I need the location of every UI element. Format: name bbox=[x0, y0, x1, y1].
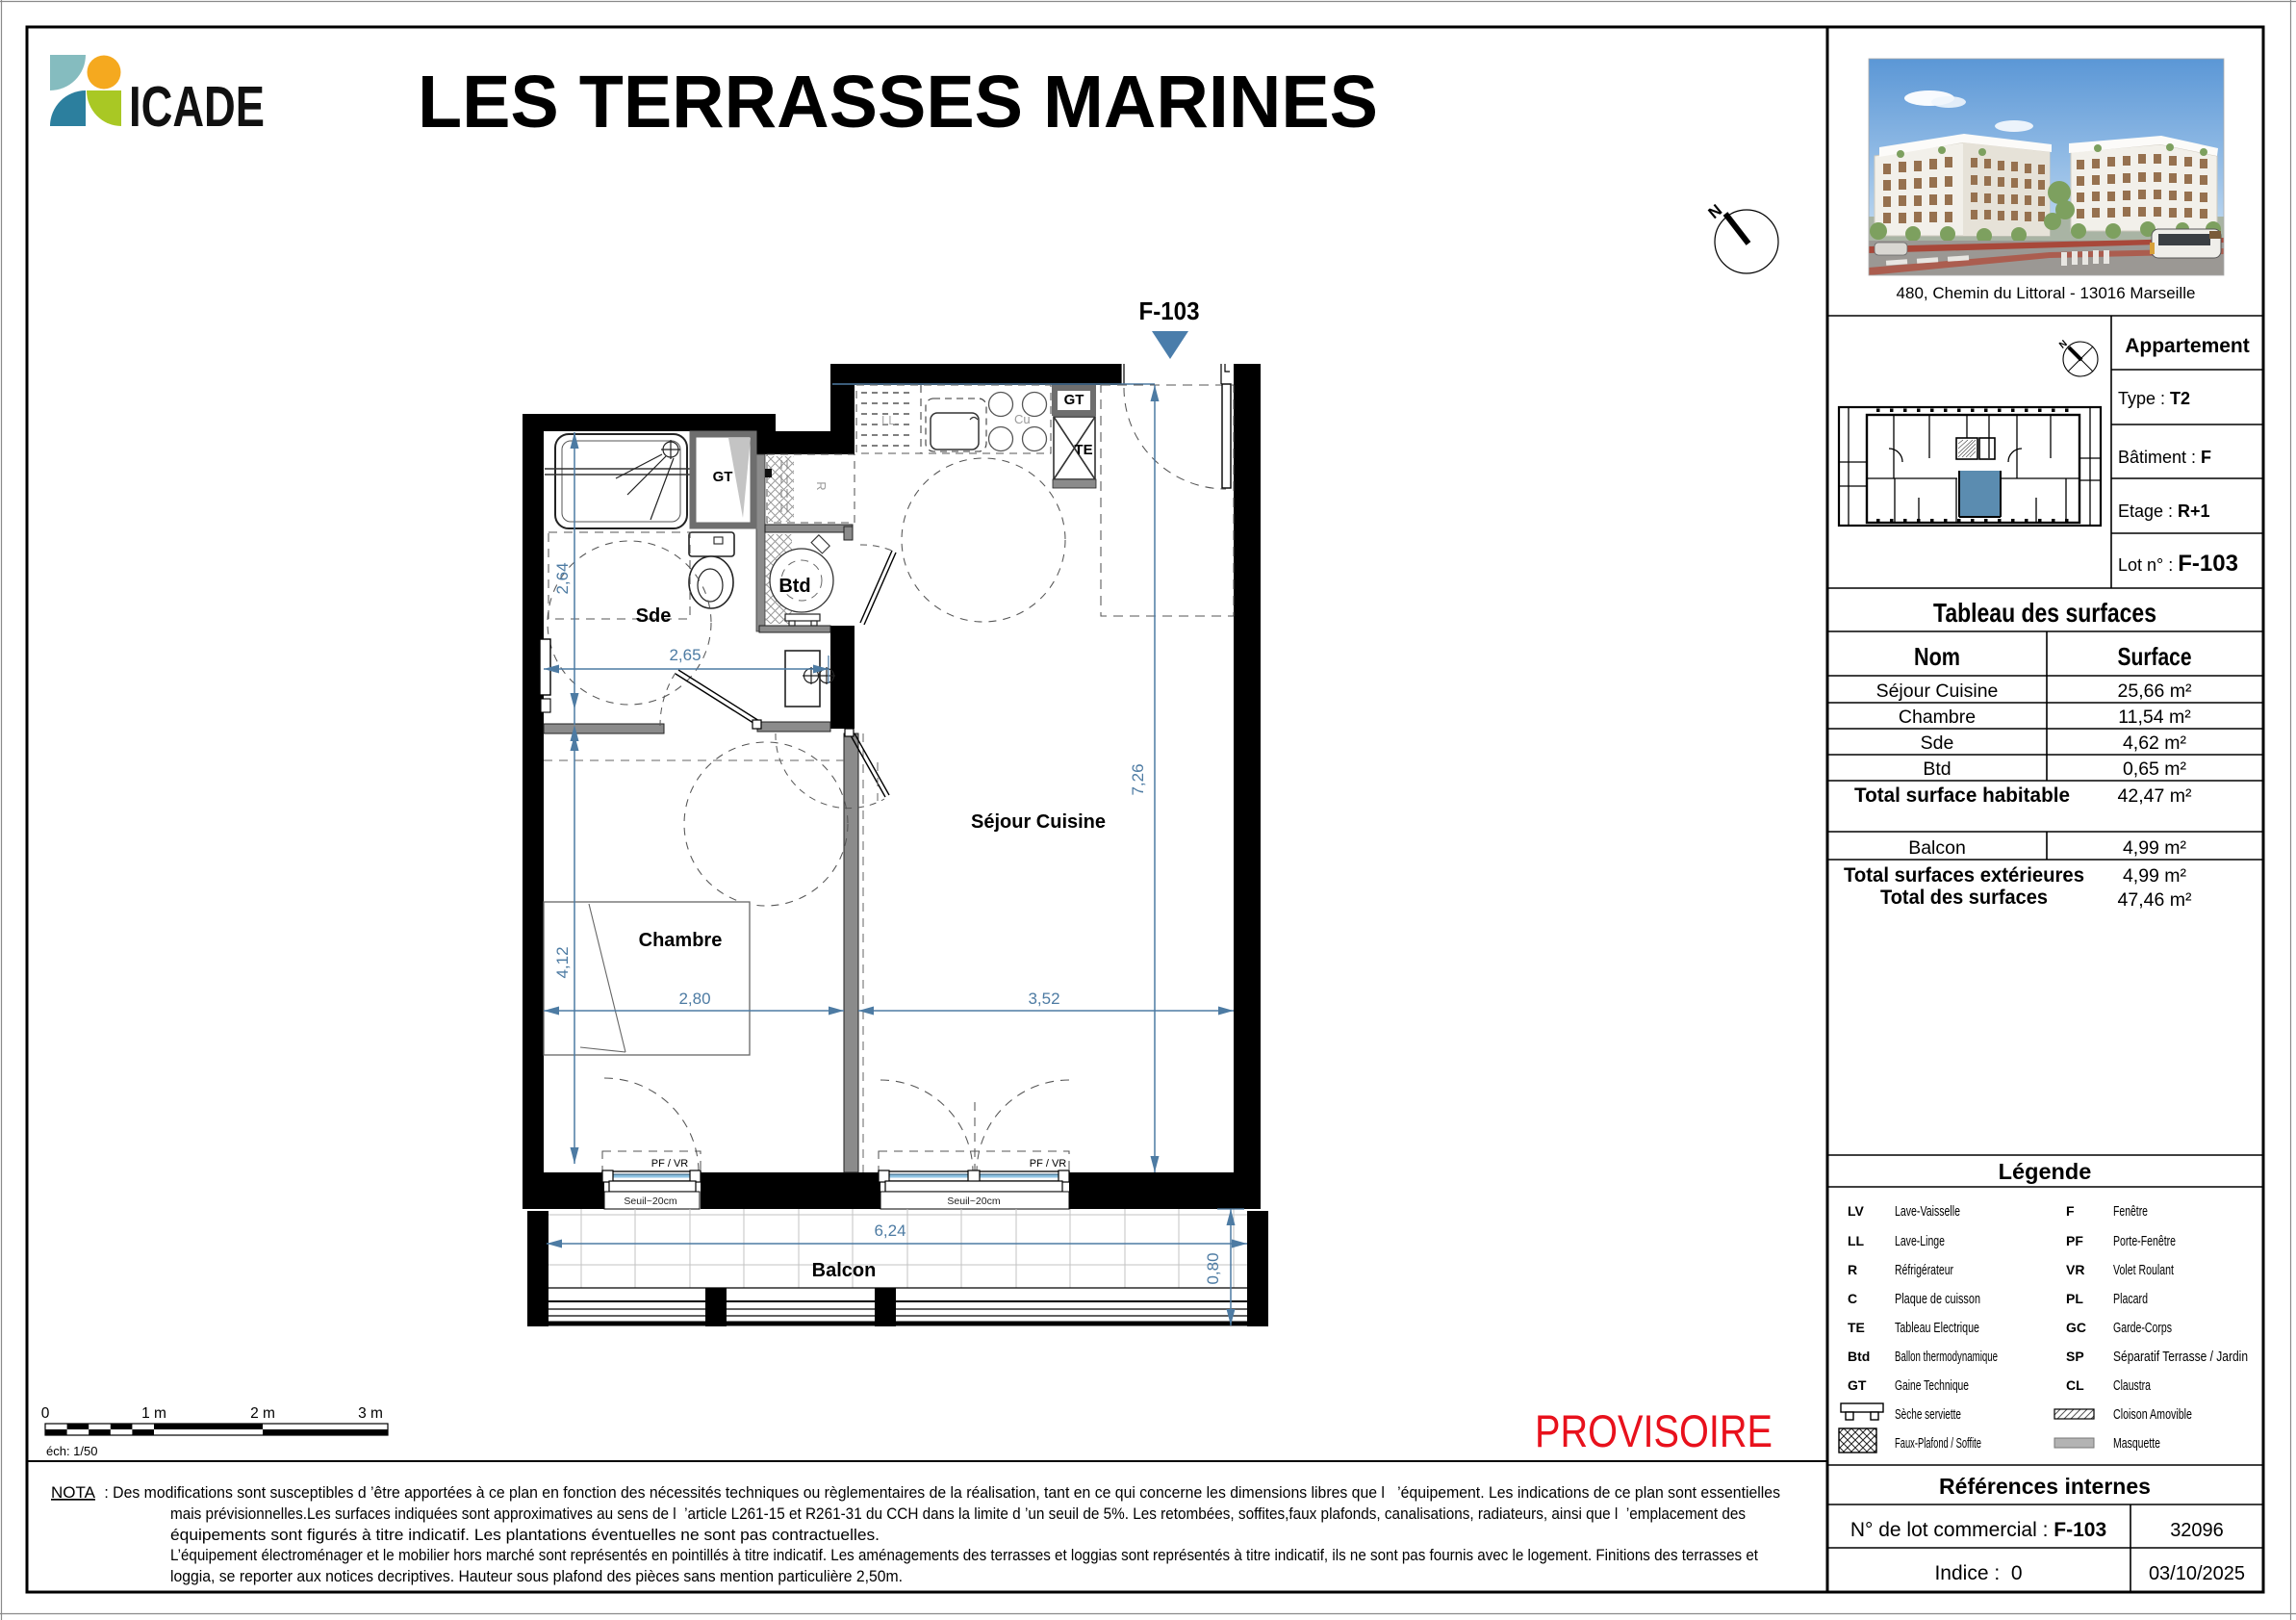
svg-text:25,66 m²: 25,66 m² bbox=[2118, 681, 2192, 702]
svg-text:Tableau des surfaces: Tableau des surfaces bbox=[1933, 598, 2156, 628]
svg-text:TE: TE bbox=[1074, 442, 1092, 458]
svg-text:Sde: Sde bbox=[1921, 733, 1954, 754]
svg-text:Lave-Vaisselle: Lave-Vaisselle bbox=[1895, 1203, 1960, 1220]
svg-text:PF: PF bbox=[2066, 1233, 2083, 1248]
svg-text:Porte-Fenêtre: Porte-Fenêtre bbox=[2113, 1233, 2176, 1249]
svg-text:F: F bbox=[2066, 1203, 2075, 1219]
svg-text:Masquette: Masquette bbox=[2113, 1435, 2160, 1452]
svg-text:CL: CL bbox=[2066, 1377, 2084, 1393]
svg-text:Chambre: Chambre bbox=[639, 930, 723, 951]
svg-text:Volet Roulant: Volet Roulant bbox=[2113, 1262, 2175, 1278]
svg-text:Gaine Technique: Gaine Technique bbox=[1895, 1377, 1969, 1394]
svg-text:Plaque de cuisson: Plaque de cuisson bbox=[1895, 1291, 1980, 1307]
svg-text:Séjour Cuisine: Séjour Cuisine bbox=[971, 811, 1106, 833]
svg-text:Seuil~20cm: Seuil~20cm bbox=[624, 1196, 676, 1207]
svg-text:4,62 m²: 4,62 m² bbox=[2123, 733, 2187, 754]
svg-text:Etage : R+1: Etage : R+1 bbox=[2118, 501, 2210, 521]
svg-text:loggia, se reporter aux notice: loggia, se reporter aux notices decripti… bbox=[170, 1567, 903, 1585]
svg-text:480, Chemin du Littoral - 1301: 480, Chemin du Littoral - 13016 Marseill… bbox=[1897, 284, 2196, 302]
svg-text:4,99 m²: 4,99 m² bbox=[2123, 837, 2187, 859]
svg-text:Placard: Placard bbox=[2113, 1291, 2148, 1307]
svg-text:1 m: 1 m bbox=[141, 1405, 166, 1422]
svg-text:7,26: 7,26 bbox=[1129, 763, 1147, 795]
svg-text:Chambre: Chambre bbox=[1899, 707, 1976, 728]
svg-text:Lave-Linge: Lave-Linge bbox=[1895, 1233, 1945, 1249]
svg-text:Btd: Btd bbox=[1848, 1349, 1870, 1364]
svg-text:Indice : 0: Indice : 0 bbox=[1934, 1562, 2022, 1584]
svg-text:R: R bbox=[1848, 1262, 1857, 1277]
svg-text:Faux-Plafond / Soffite: Faux-Plafond / Soffite bbox=[1895, 1435, 1981, 1452]
svg-text:Légende: Légende bbox=[1999, 1159, 2092, 1184]
svg-text:Btd: Btd bbox=[778, 576, 810, 597]
svg-text:11,54 m²: 11,54 m² bbox=[2118, 707, 2191, 728]
svg-text:: Des modifications sont susce: : Des modifications sont susceptibles d … bbox=[100, 1483, 1780, 1502]
svg-text:PL: PL bbox=[2066, 1291, 2083, 1306]
svg-text:0,65 m²: 0,65 m² bbox=[2123, 759, 2187, 780]
svg-text:0,80: 0,80 bbox=[1204, 1252, 1222, 1284]
svg-text:Séparatif Terrasse / Jardin: Séparatif Terrasse / Jardin bbox=[2113, 1349, 2248, 1365]
svg-text:3,52: 3,52 bbox=[1028, 990, 1059, 1008]
svg-text:Surface: Surface bbox=[2118, 642, 2192, 671]
svg-text:SP: SP bbox=[2066, 1349, 2084, 1364]
svg-text:Références internes: Références internes bbox=[1939, 1474, 2151, 1499]
svg-text:R: R bbox=[814, 481, 829, 490]
svg-text:Bâtiment : F: Bâtiment : F bbox=[2118, 448, 2211, 467]
svg-text:Cu: Cu bbox=[1014, 412, 1031, 426]
svg-text:2,64: 2,64 bbox=[553, 562, 572, 594]
svg-text:Balcon: Balcon bbox=[812, 1260, 877, 1281]
svg-text:Réfrigérateur: Réfrigérateur bbox=[1895, 1262, 1953, 1278]
svg-text:42,47 m²: 42,47 m² bbox=[2118, 785, 2192, 807]
svg-text:Ballon thermodynamique: Ballon thermodynamique bbox=[1895, 1349, 1998, 1365]
svg-text:Nom: Nom bbox=[1914, 642, 1960, 671]
svg-text:LES TERRASSES MARINES: LES TERRASSES MARINES bbox=[418, 61, 1378, 143]
svg-text:éch: 1/50: éch: 1/50 bbox=[46, 1444, 98, 1458]
svg-text:Total des surfaces: Total des surfaces bbox=[1880, 887, 2048, 909]
svg-text:2,80: 2,80 bbox=[678, 990, 710, 1008]
svg-text:4,12: 4,12 bbox=[553, 946, 572, 978]
svg-text:N° de lot commercial : F-103: N° de lot commercial : F-103 bbox=[1850, 1519, 2106, 1541]
svg-text:3 m: 3 m bbox=[358, 1405, 383, 1422]
svg-text:Tableau Electrique: Tableau Electrique bbox=[1895, 1320, 1979, 1336]
svg-text:C: C bbox=[1848, 1291, 1857, 1306]
svg-text:Balcon: Balcon bbox=[1908, 837, 1966, 859]
svg-text:LL: LL bbox=[881, 413, 895, 427]
svg-text:Seuil~20cm: Seuil~20cm bbox=[947, 1196, 1000, 1207]
svg-text:GT: GT bbox=[1064, 392, 1084, 408]
svg-text:Btd: Btd bbox=[1923, 759, 1951, 780]
svg-text:Cloison Amovible: Cloison Amovible bbox=[2113, 1406, 2192, 1423]
svg-text:Garde-Corps: Garde-Corps bbox=[2113, 1320, 2172, 1336]
svg-text:2,65: 2,65 bbox=[669, 646, 701, 664]
svg-text:Lot n° : F-103: Lot n° : F-103 bbox=[2118, 551, 2238, 577]
svg-text:PF / VR: PF / VR bbox=[651, 1158, 689, 1170]
svg-text:Séjour Cuisine: Séjour Cuisine bbox=[1876, 681, 1999, 702]
svg-text:VR: VR bbox=[2066, 1262, 2084, 1277]
svg-text:Sde: Sde bbox=[636, 605, 672, 627]
svg-text:mais prévisionnelles.Les surfa: mais prévisionnelles.Les surfaces indiqu… bbox=[170, 1504, 1746, 1523]
svg-text:0: 0 bbox=[41, 1405, 50, 1422]
svg-text:Total surface habitable: Total surface habitable bbox=[1854, 784, 2070, 807]
svg-text:ICADE: ICADE bbox=[129, 75, 265, 139]
svg-text:Sèche serviette: Sèche serviette bbox=[1895, 1406, 1961, 1423]
svg-text:PF / VR: PF / VR bbox=[1030, 1158, 1067, 1170]
svg-text:LV: LV bbox=[1848, 1203, 1865, 1219]
svg-text:Fenêtre: Fenêtre bbox=[2113, 1203, 2148, 1220]
svg-text:Type : T2: Type : T2 bbox=[2118, 389, 2190, 408]
svg-text:6,24: 6,24 bbox=[874, 1221, 906, 1240]
svg-text:Appartement: Appartement bbox=[2125, 335, 2250, 357]
svg-text:équipements sont figurés à tit: équipements sont figurés à titre indicat… bbox=[170, 1526, 880, 1544]
svg-text:32096: 32096 bbox=[2170, 1520, 2224, 1541]
svg-text:Total surfaces extérieures: Total surfaces extérieures bbox=[1844, 864, 2084, 887]
svg-text:47,46 m²: 47,46 m² bbox=[2118, 889, 2192, 911]
svg-text:GC: GC bbox=[2066, 1320, 2086, 1335]
svg-text:Claustra: Claustra bbox=[2113, 1377, 2151, 1394]
svg-text:2 m: 2 m bbox=[250, 1405, 275, 1422]
svg-text:03/10/2025: 03/10/2025 bbox=[2149, 1563, 2245, 1584]
svg-text:PROVISOIRE: PROVISOIRE bbox=[1535, 1405, 1773, 1456]
svg-text:GT: GT bbox=[713, 469, 733, 485]
svg-text:F-103: F-103 bbox=[1139, 296, 1200, 325]
svg-text:GT: GT bbox=[1848, 1377, 1867, 1393]
svg-text:L’équipement électroménager et: L’équipement électroménager et le mobili… bbox=[170, 1546, 1758, 1564]
svg-text:NOTA: NOTA bbox=[51, 1483, 96, 1502]
svg-text:LL: LL bbox=[1848, 1233, 1865, 1248]
svg-text:4,99 m²: 4,99 m² bbox=[2123, 865, 2187, 887]
svg-text:TE: TE bbox=[1848, 1320, 1865, 1335]
